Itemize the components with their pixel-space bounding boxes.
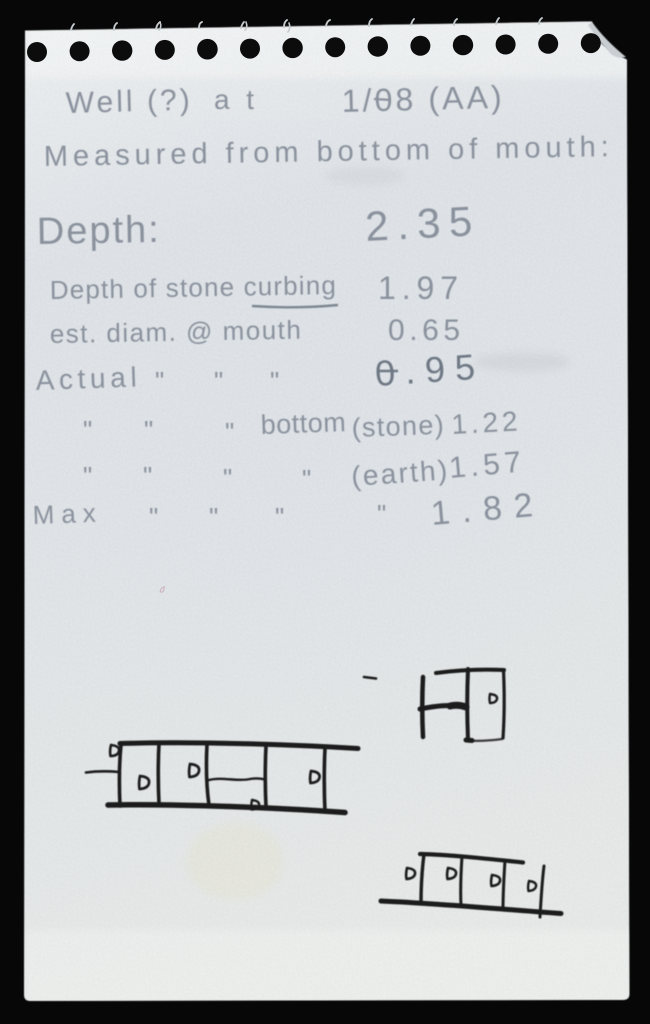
- svg-text:Depth:: Depth:: [36, 209, 159, 253]
- svg-text:": ": [225, 417, 234, 447]
- svg-text:bottom: bottom: [260, 407, 346, 440]
- svg-text:": ": [83, 415, 92, 445]
- svg-text:": ": [143, 461, 152, 491]
- svg-text:1/08 (AA): 1/08 (AA): [341, 79, 502, 119]
- svg-text:": ": [302, 464, 311, 494]
- svg-text:": ": [214, 366, 223, 396]
- svg-text:": ": [377, 499, 386, 529]
- svg-text:(stone): (stone): [351, 410, 444, 443]
- svg-text:": ": [149, 502, 158, 532]
- svg-text:": ": [83, 461, 92, 491]
- svg-text:Depth of stone curbing: Depth of stone curbing: [50, 270, 336, 305]
- svg-text:Well (?): Well (?): [65, 84, 190, 120]
- svg-text:": ": [144, 415, 153, 445]
- svg-text:Max: Max: [32, 498, 96, 530]
- svg-text:": ": [155, 366, 164, 396]
- svg-text:": ": [223, 463, 232, 493]
- svg-text:1.22: 1.22: [451, 406, 519, 440]
- svg-text:": ": [270, 366, 279, 396]
- svg-text:1.97: 1.97: [378, 270, 458, 306]
- svg-text:0.65: 0.65: [388, 314, 460, 347]
- svg-text:2.35: 2.35: [364, 197, 473, 250]
- svg-text:1.57: 1.57: [448, 446, 523, 485]
- svg-text:": ": [209, 502, 218, 532]
- svg-text:": ": [275, 502, 284, 532]
